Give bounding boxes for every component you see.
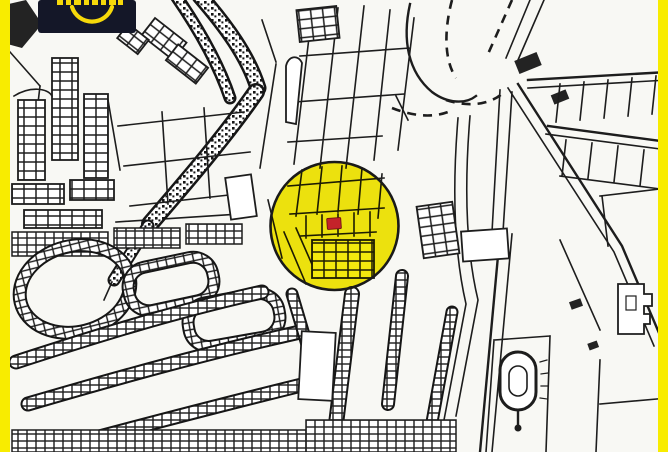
- selected-parcel-marker[interactable]: [327, 218, 342, 230]
- brand-logo: [38, 0, 136, 33]
- map-screenshot: [0, 0, 668, 452]
- yellow-border-right: [658, 0, 668, 452]
- yellow-border-left: [0, 0, 10, 452]
- map-canvas[interactable]: [0, 0, 668, 452]
